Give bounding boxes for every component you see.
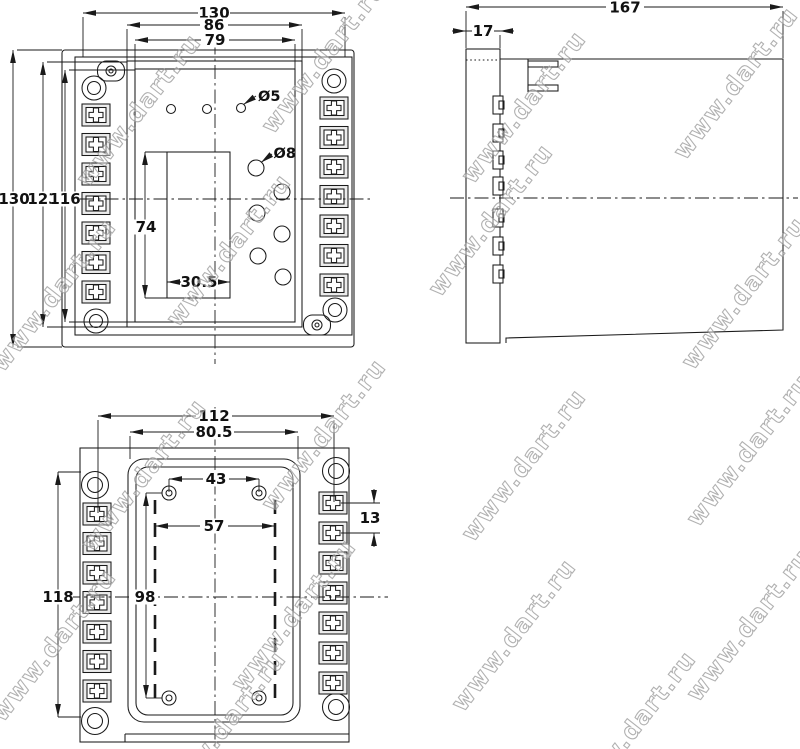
technical-drawing-sheet: 130 86 79 130 123 [0,0,800,749]
mounting-ear-hole [84,309,108,333]
dim-side-overall-depth: 167 [466,0,783,58]
corner-tab-hole [98,61,125,81]
dim-label: 98 [135,588,156,606]
watermark: www.dart.ru [456,383,592,546]
dim-window-height: 74 [134,152,167,298]
mounting-ear-hole [323,694,350,721]
dim-label: 80.5 [195,423,232,441]
watermark: www.dart.ru [681,368,800,531]
rear-mounting-hole [162,691,176,705]
mounting-ear-hole [82,76,106,100]
mounting-ear-hole [323,458,350,485]
dim-slot-spacing: 57 [155,517,275,535]
watermark: www.dart.ru [76,393,212,556]
dim-label: 130 [0,190,30,208]
mounting-ear-hole [82,708,109,735]
callout-hole-8mm: Ø8 [261,146,296,163]
dim-label: 17 [473,22,494,40]
watermark: www.dart.ru [446,553,582,716]
watermark: www.dart.ru [676,211,800,374]
mounting-ear-hole [82,472,109,499]
small-holes-5mm [167,104,246,114]
mounting-ear-hole [323,298,347,322]
dim-label: 79 [205,31,226,49]
watermark: www.dart.ru [161,168,297,331]
dim-label: 116 [49,190,80,208]
drawing-canvas: 130 86 79 130 123 [0,0,800,749]
dim-label: 167 [609,0,640,17]
watermark: www.dart.ru [566,645,702,749]
dim-label: 57 [204,517,225,535]
front-terminal-strip-right [320,97,348,296]
front-body-outline [75,57,352,335]
dim-side-panel-depth: 17 [452,22,514,48]
watermark: www.dart.ru [668,1,800,164]
dim-label: 43 [206,470,227,488]
dim-label: Ø8 [274,146,296,162]
watermark: www.dart.ru [681,543,800,706]
dim-label: 74 [136,218,157,236]
dim-label: 13 [360,509,381,527]
watermark-layer: www.dart.ru www.dart.ru www.dart.ru www.… [0,0,800,749]
dim-top-hole-spacing: 43 [169,470,259,492]
